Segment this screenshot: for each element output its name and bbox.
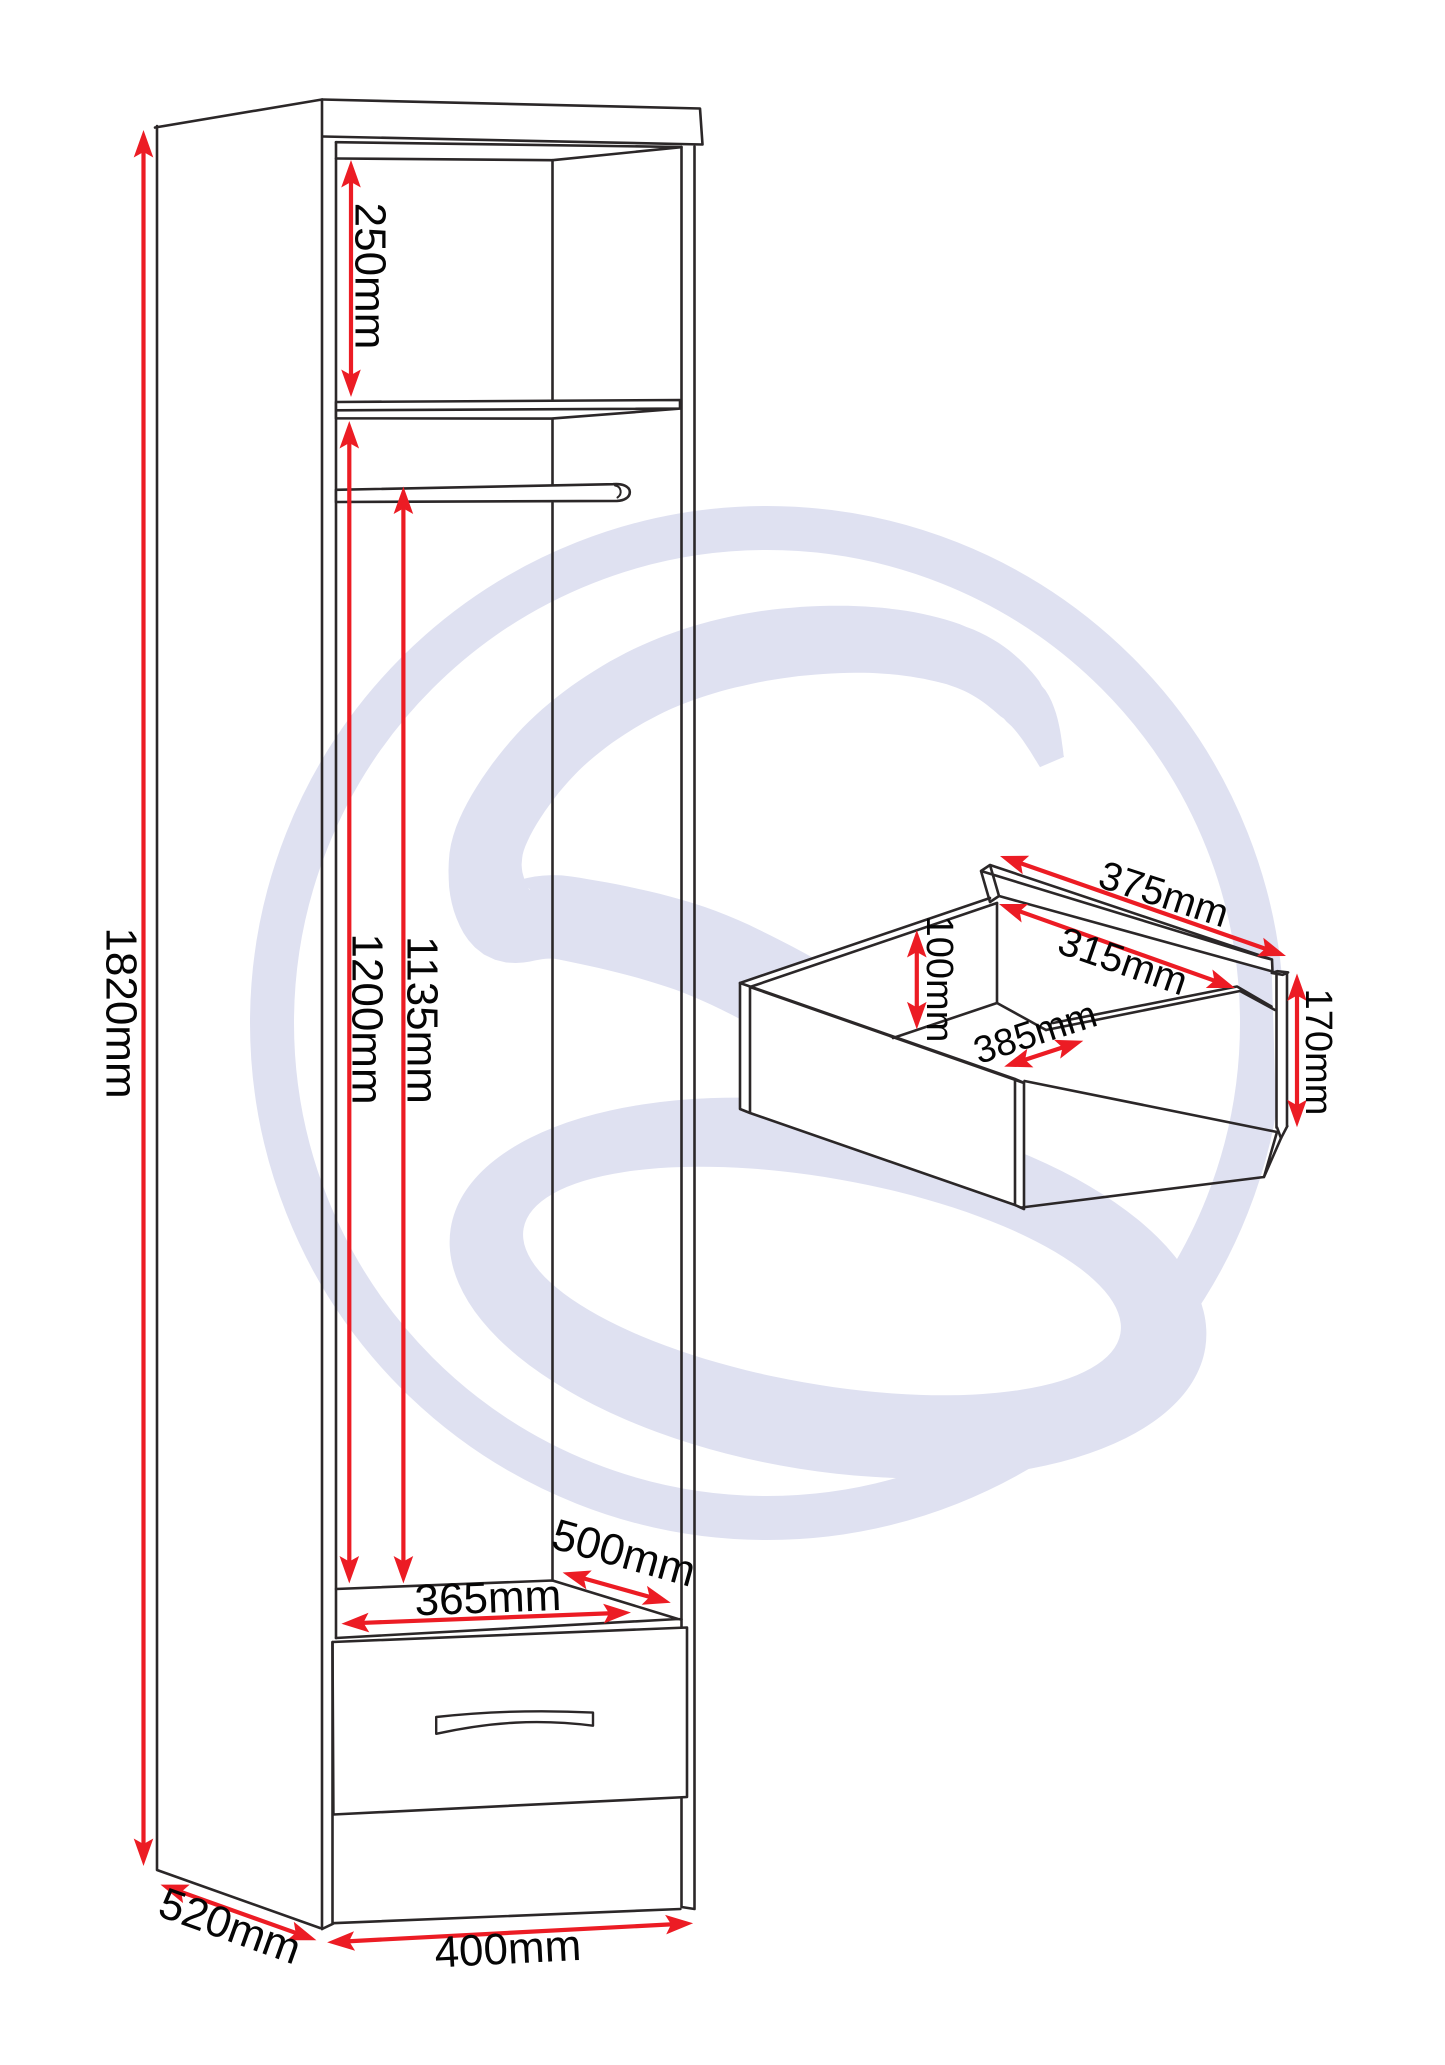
svg-text:1200mm: 1200mm [342,933,391,1104]
svg-text:100mm: 100mm [918,916,960,1043]
svg-text:400mm: 400mm [433,1921,582,1978]
svg-text:1820mm: 1820mm [96,927,145,1098]
svg-text:250mm: 250mm [345,203,394,350]
svg-text:520mm: 520mm [153,1878,308,1974]
svg-text:1135mm: 1135mm [397,936,446,1104]
svg-text:170mm: 170mm [1297,989,1339,1116]
svg-text:365mm: 365mm [414,1571,562,1626]
